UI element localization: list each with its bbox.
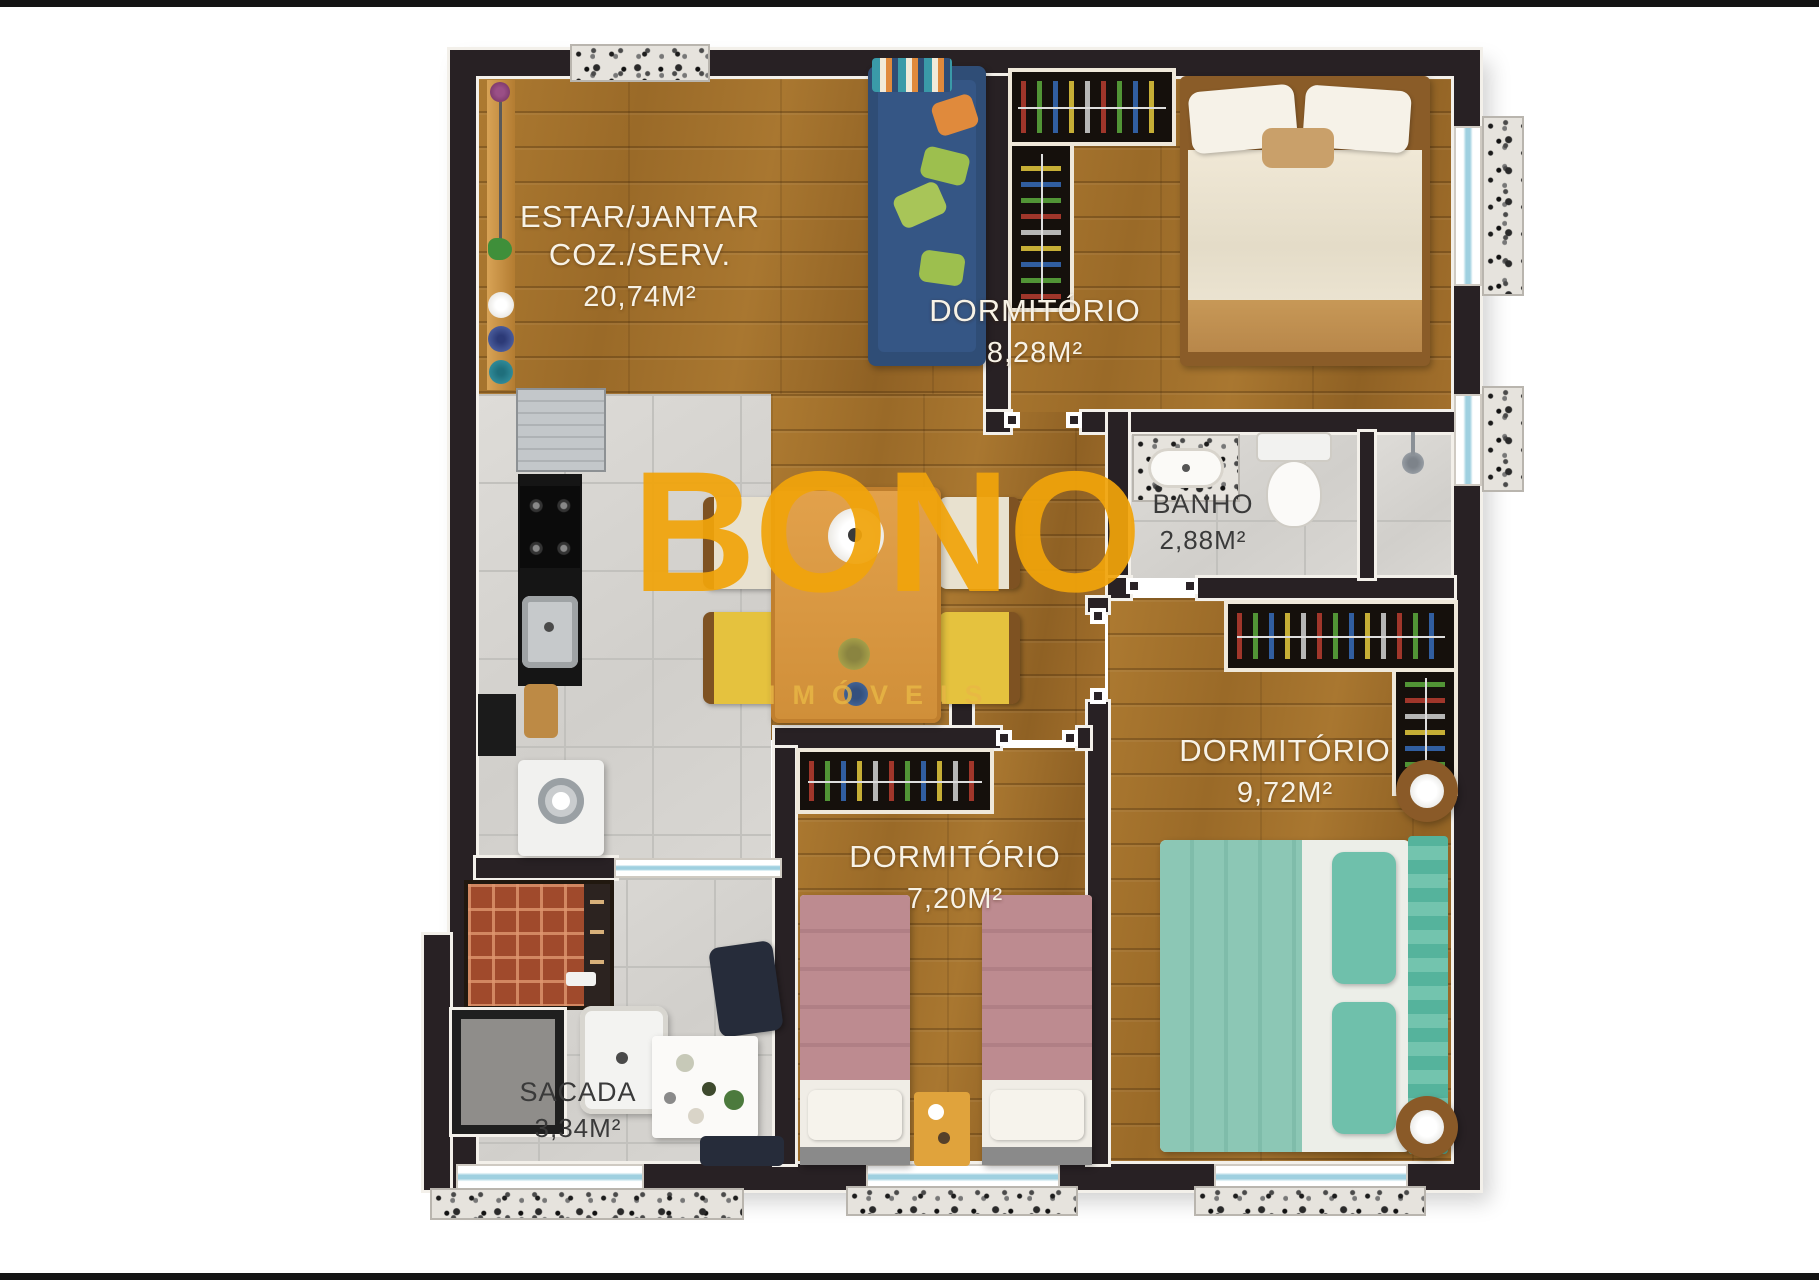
door-jamb <box>1004 412 1020 428</box>
plate-teal <box>489 360 513 384</box>
room-area: 9,72M² <box>1150 776 1420 811</box>
bed-duvet <box>1188 150 1422 310</box>
door-jamb <box>1182 578 1198 594</box>
bed-throw-blanket <box>1188 300 1422 352</box>
bed-teal-blanket <box>1160 840 1302 1152</box>
room-area: 2,88M² <box>1128 525 1278 557</box>
balcony-sliding-door <box>616 860 780 876</box>
sink-drain <box>1182 464 1190 472</box>
floor-plan-image: BONO IMÓVEIS ESTAR/JANTAR COZ./SERV. 20,… <box>0 0 1819 1280</box>
shower-divider-wall <box>1360 432 1374 578</box>
room-area: 8,28M² <box>900 336 1170 371</box>
bedroom3-left-wall <box>775 748 795 1164</box>
bedroom2-label: DORMITÓRIO 9,72M² <box>1150 732 1420 811</box>
balcony-window <box>458 1166 642 1188</box>
balcony-chair <box>708 940 784 1038</box>
flower-decor <box>490 82 510 102</box>
granite-sill-right-top <box>1484 118 1522 294</box>
bed-pillow-teal <box>1332 852 1396 984</box>
sink-drain <box>544 622 554 632</box>
washing-machine-door <box>538 778 584 824</box>
toilet-tank <box>1258 434 1330 460</box>
granite-sill-right-mid <box>1484 388 1522 490</box>
wardrobe-closet <box>800 752 990 810</box>
bedroom3-window <box>868 1166 1058 1188</box>
plate-blue <box>488 326 514 352</box>
room-name: DORMITÓRIO <box>900 292 1170 330</box>
granite-sill-bottom-center <box>848 1188 1076 1214</box>
plant-decor <box>724 1090 744 1110</box>
room-area: 3,34M² <box>498 1113 658 1145</box>
shower-window <box>1456 396 1480 484</box>
plant-decor <box>702 1082 716 1096</box>
granite-sill-bottom-left <box>432 1190 742 1218</box>
skewer <box>590 960 604 964</box>
room-name: BANHO <box>1128 488 1278 521</box>
wardrobe-closet <box>1228 604 1454 668</box>
single-bed-base <box>800 1147 910 1165</box>
bedroom3-top-wall-b <box>1078 728 1090 748</box>
watermark-brand: BONO <box>632 446 1140 618</box>
plate-decor <box>688 1108 704 1124</box>
single-bed-pillow <box>990 1090 1084 1140</box>
cooktop <box>520 486 580 568</box>
room-name: COZ./SERV. <box>480 236 800 274</box>
single-bed-base <box>982 1147 1092 1165</box>
striped-box-decor <box>872 58 952 92</box>
room-area: 7,20M² <box>820 882 1090 917</box>
plate-decor <box>664 1092 676 1104</box>
rug-decor <box>928 1104 944 1120</box>
balcony-chair <box>700 1136 784 1166</box>
bed-pillow-teal <box>1332 1002 1396 1134</box>
room-name: SACADA <box>498 1076 658 1109</box>
fridge <box>518 390 604 470</box>
top-window-granite-sill <box>572 46 708 80</box>
kitchen-balcony-wall <box>476 858 616 878</box>
bedroom3-label: DORMITÓRIO 7,20M² <box>820 838 1090 917</box>
watermark-subtitle: IMÓVEIS <box>768 680 1000 711</box>
kitchen-cabinet <box>478 694 516 756</box>
wardrobe-closet <box>1012 72 1172 142</box>
bottom-border-line <box>0 1273 1819 1280</box>
cutting-board <box>524 684 558 738</box>
sofa-pillow-green <box>918 249 966 287</box>
door-jamb <box>1062 730 1078 746</box>
door-jamb <box>1090 688 1106 704</box>
kitchen-sink <box>522 596 578 668</box>
bedroom2-window <box>1216 1166 1406 1188</box>
bathroom-label: BANHO 2,88M² <box>1128 488 1278 557</box>
nightstand-lamp <box>1410 1110 1444 1144</box>
balcony-left-wall <box>424 935 450 1190</box>
balcony-label: SACADA 3,34M² <box>498 1076 658 1145</box>
door-jamb <box>996 730 1012 746</box>
skewer <box>590 900 604 904</box>
wardrobe-closet <box>1012 146 1070 308</box>
granite-sill-bottom-right <box>1196 1188 1424 1214</box>
bedroom1-label: DORMITÓRIO 8,28M² <box>900 292 1170 371</box>
bathroom-bottom-wall-b <box>1198 578 1454 598</box>
single-bed-blanket <box>800 895 910 1080</box>
table-vase-decor <box>838 638 870 670</box>
bedroom1-window <box>1456 128 1480 284</box>
bedside-rug <box>914 1092 970 1166</box>
laundry-sink-drain <box>616 1052 628 1064</box>
bed-cushion <box>1262 128 1334 168</box>
skewer <box>590 930 604 934</box>
plate-decor <box>676 1054 694 1072</box>
single-bed-blanket <box>982 895 1092 1080</box>
bedroom3-top-wall <box>775 728 1000 748</box>
room-name: DORMITÓRIO <box>820 838 1090 876</box>
shower-arm <box>1411 432 1415 456</box>
room-area: 20,74M² <box>480 280 800 315</box>
room-name: DORMITÓRIO <box>1150 732 1420 770</box>
door-jamb <box>1066 412 1082 428</box>
living-room-label: ESTAR/JANTAR COZ./SERV. 20,74M² <box>480 198 800 315</box>
room-name: ESTAR/JANTAR <box>480 198 800 236</box>
bedroom1-bottom-wall <box>1082 412 1454 432</box>
top-border-line <box>0 0 1819 7</box>
grill-handle <box>566 972 596 986</box>
single-bed-pillow <box>808 1090 902 1140</box>
rug-decor <box>938 1132 950 1144</box>
